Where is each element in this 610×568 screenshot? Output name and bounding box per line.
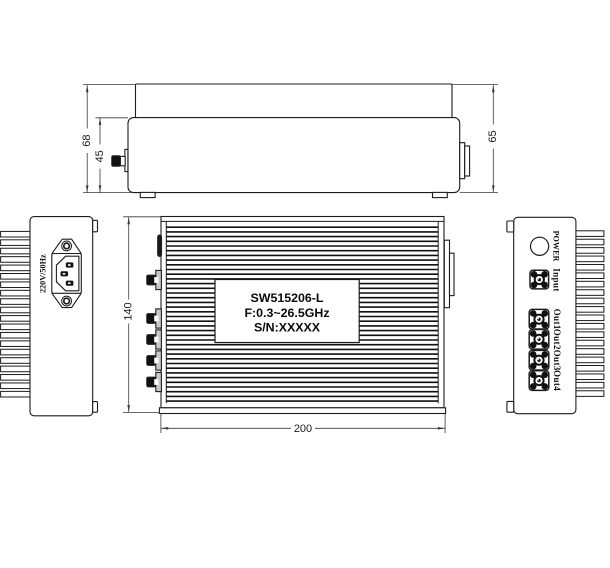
svg-text:Input: Input <box>551 268 561 292</box>
svg-text:45: 45 <box>94 150 106 162</box>
svg-text:SW515206-L: SW515206-L <box>250 291 323 305</box>
svg-text:POWER: POWER <box>552 231 561 262</box>
svg-text:Out4: Out4 <box>552 370 562 391</box>
svg-text:220V/50Hz: 220V/50Hz <box>38 254 47 293</box>
svg-text:S/N:XXXXX: S/N:XXXXX <box>254 321 321 335</box>
svg-text:200: 200 <box>294 423 312 435</box>
svg-text:140: 140 <box>123 302 135 320</box>
svg-text:Out1: Out1 <box>552 309 562 330</box>
svg-text:F:0.3~26.5GHz: F:0.3~26.5GHz <box>244 306 329 320</box>
svg-text:65: 65 <box>487 130 499 142</box>
svg-text:Out3: Out3 <box>552 350 562 371</box>
svg-text:Out2: Out2 <box>552 329 562 350</box>
svg-text:68: 68 <box>81 134 93 146</box>
